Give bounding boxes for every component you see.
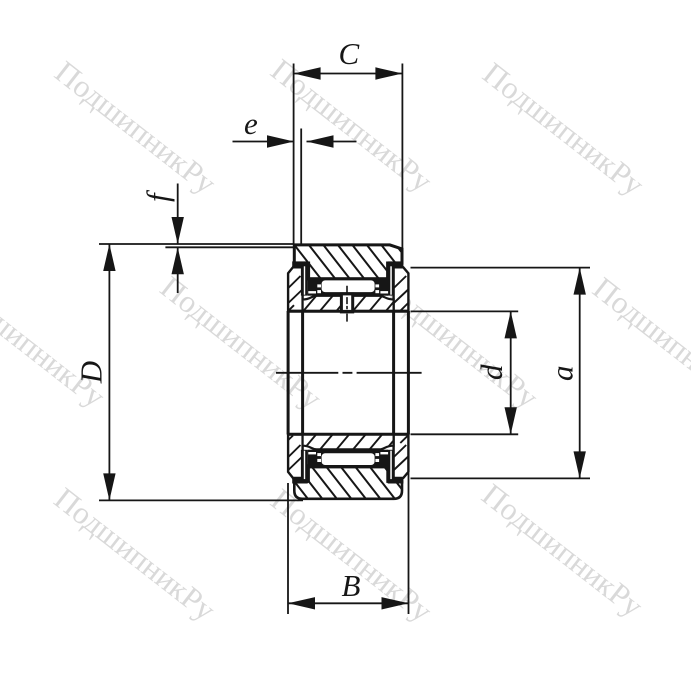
svg-text:a: a (545, 366, 580, 382)
svg-text:D: D (73, 361, 108, 384)
svg-text:d: d (474, 364, 509, 380)
svg-text:e: e (244, 106, 258, 141)
svg-text:C: C (339, 36, 360, 71)
svg-text:B: B (342, 568, 361, 603)
